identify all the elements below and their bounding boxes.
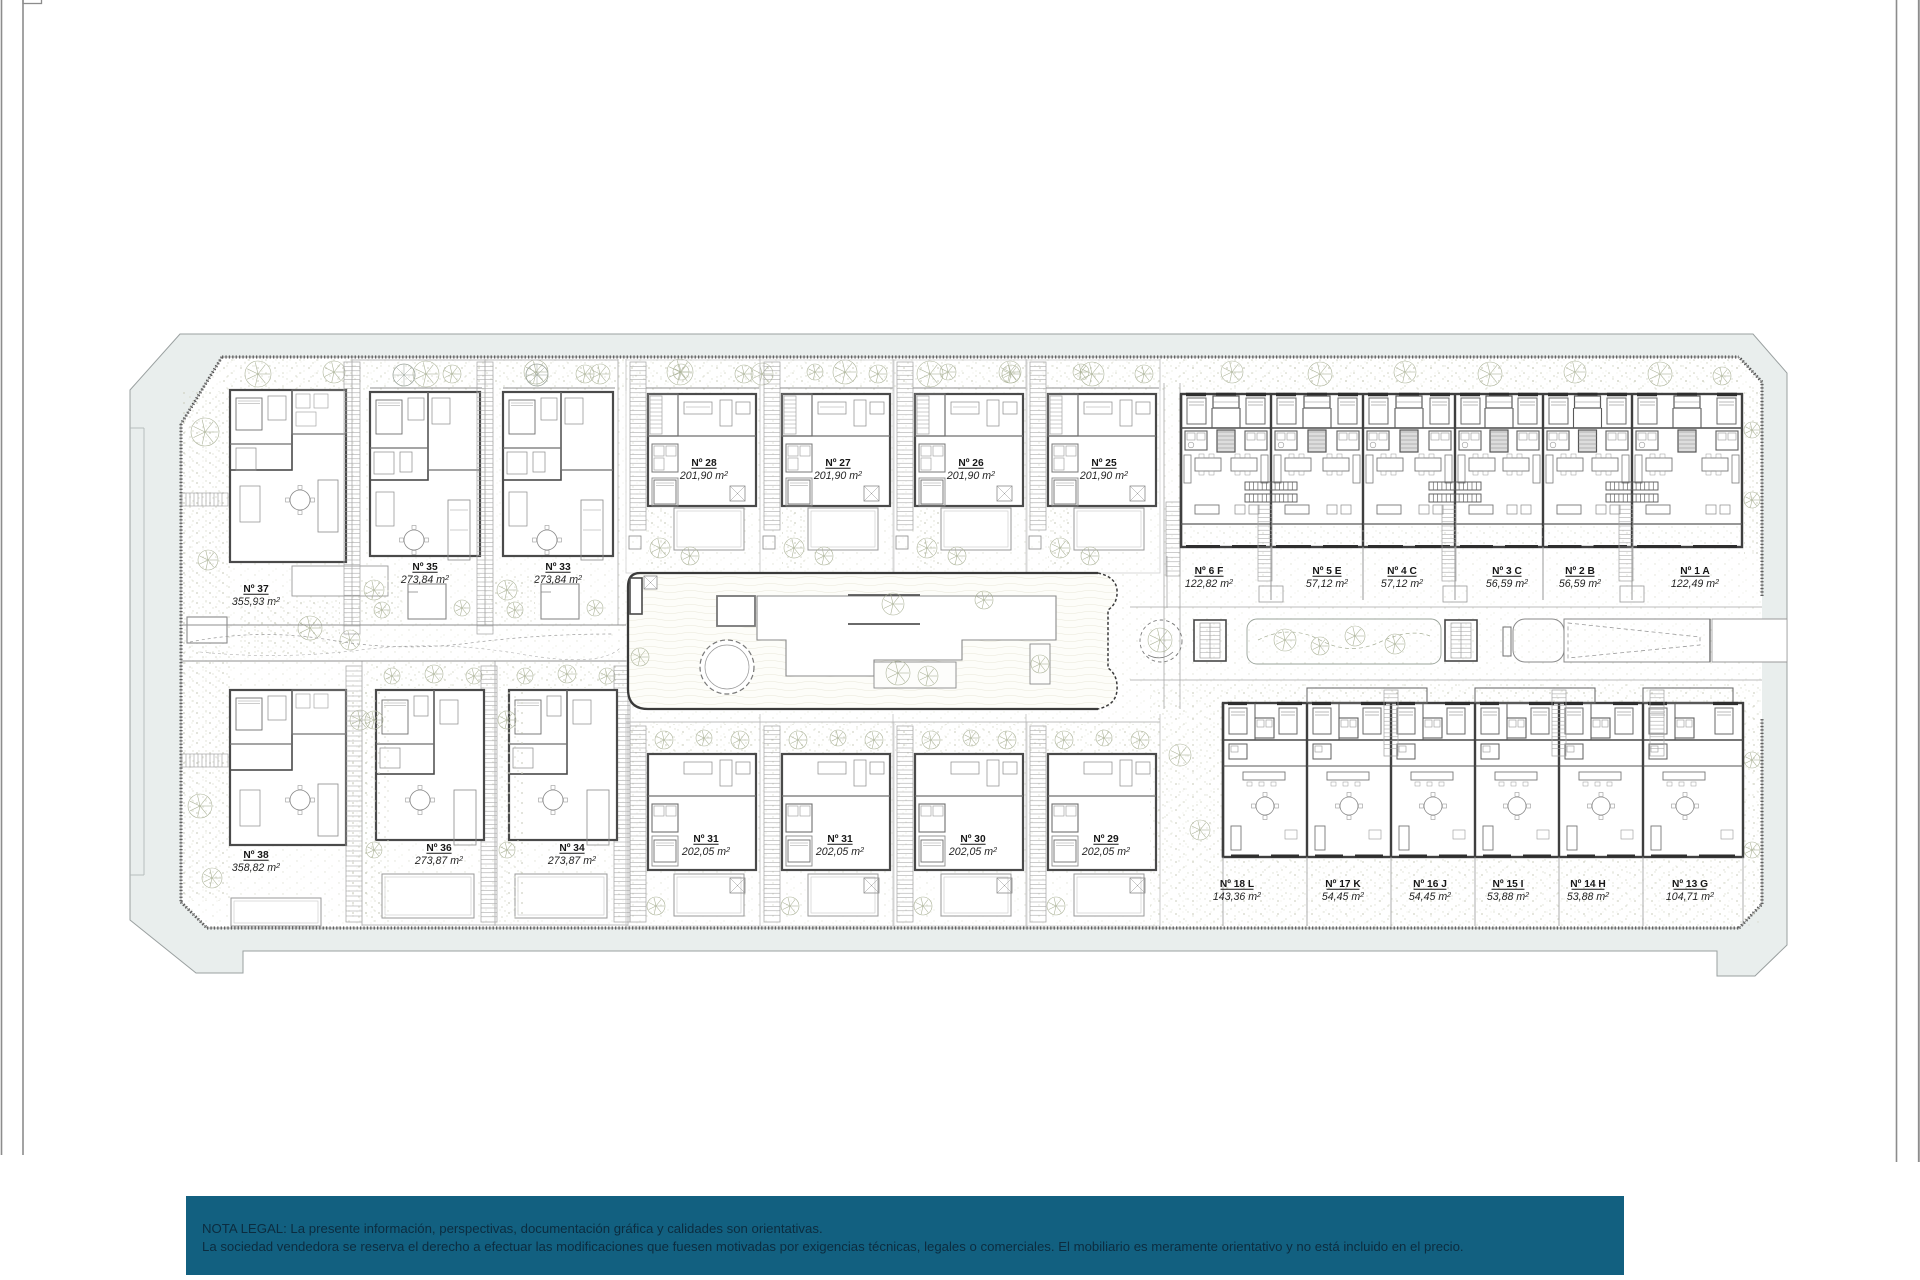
svg-text:273,84 m2: 273,84 m2 <box>533 573 582 586</box>
svg-text:273,87 m2: 273,87 m2 <box>547 854 596 867</box>
svg-text:201,90 m2: 201,90 m2 <box>946 469 995 482</box>
svg-text:201,90 m2: 201,90 m2 <box>813 469 862 482</box>
svg-text:57,12 m2: 57,12 m2 <box>1306 577 1348 590</box>
svg-text:122,49 m2: 122,49 m2 <box>1671 577 1719 590</box>
svg-text:Nº 4 C: Nº 4 C <box>1387 566 1417 577</box>
svg-text:57,12 m2: 57,12 m2 <box>1381 577 1423 590</box>
svg-text:273,87 m2: 273,87 m2 <box>414 854 463 867</box>
svg-text:201,90 m2: 201,90 m2 <box>1079 469 1128 482</box>
svg-text:Nº 33: Nº 33 <box>545 562 571 573</box>
svg-text:Nº 1 A: Nº 1 A <box>1680 566 1710 577</box>
svg-text:201,90 m2: 201,90 m2 <box>679 469 728 482</box>
svg-text:Nº 28: Nº 28 <box>691 458 717 469</box>
svg-text:Nº 15 I: Nº 15 I <box>1493 879 1524 890</box>
svg-text:Nº 31: Nº 31 <box>693 834 719 845</box>
svg-text:143,36 m2: 143,36 m2 <box>1213 890 1261 903</box>
svg-text:Nº 14 H: Nº 14 H <box>1570 879 1605 890</box>
svg-text:Nº 26: Nº 26 <box>958 458 984 469</box>
svg-text:54,45 m2: 54,45 m2 <box>1409 890 1451 903</box>
svg-text:53,88 m2: 53,88 m2 <box>1487 890 1529 903</box>
svg-text:Nº 18 L: Nº 18 L <box>1220 879 1254 890</box>
svg-text:54,45 m2: 54,45 m2 <box>1322 890 1364 903</box>
svg-text:Nº 5 E: Nº 5 E <box>1312 566 1341 577</box>
svg-text:La sociedad vendedora se reser: La sociedad vendedora se reserva el dere… <box>202 1239 1464 1254</box>
svg-text:Nº 38: Nº 38 <box>243 850 269 861</box>
svg-text:Nº 13 G: Nº 13 G <box>1672 879 1708 890</box>
svg-text:Nº 35: Nº 35 <box>412 562 438 573</box>
svg-text:Nº 27: Nº 27 <box>825 458 851 469</box>
svg-text:Nº 34: Nº 34 <box>559 843 585 854</box>
svg-text:Nº 29: Nº 29 <box>1093 834 1119 845</box>
svg-text:Nº 3 C: Nº 3 C <box>1492 566 1522 577</box>
svg-text:122,82 m2: 122,82 m2 <box>1185 577 1233 590</box>
svg-text:Nº 2 B: Nº 2 B <box>1565 566 1595 577</box>
svg-text:Nº 17 K: Nº 17 K <box>1325 879 1361 890</box>
svg-text:Nº 37: Nº 37 <box>243 584 269 595</box>
svg-text:202,05 m2: 202,05 m2 <box>948 845 997 858</box>
svg-text:273,84 m2: 273,84 m2 <box>400 573 449 586</box>
svg-text:358,82 m2: 358,82 m2 <box>232 861 280 874</box>
svg-text:Nº 31: Nº 31 <box>827 834 853 845</box>
svg-text:Nº 30: Nº 30 <box>960 834 986 845</box>
svg-text:NOTA LEGAL: La presente inform: NOTA LEGAL: La presente información, per… <box>202 1221 823 1236</box>
svg-text:Nº 6 F: Nº 6 F <box>1195 566 1224 577</box>
svg-text:Nº 16 J: Nº 16 J <box>1413 879 1447 890</box>
svg-text:56,59 m2: 56,59 m2 <box>1559 577 1601 590</box>
svg-text:56,59 m2: 56,59 m2 <box>1486 577 1528 590</box>
svg-text:104,71 m2: 104,71 m2 <box>1666 890 1714 903</box>
svg-text:Nº 25: Nº 25 <box>1091 458 1117 469</box>
svg-text:53,88 m2: 53,88 m2 <box>1567 890 1609 903</box>
svg-text:Nº 36: Nº 36 <box>426 843 452 854</box>
svg-text:202,05 m2: 202,05 m2 <box>681 845 730 858</box>
svg-text:202,05 m2: 202,05 m2 <box>815 845 864 858</box>
svg-text:202,05 m2: 202,05 m2 <box>1081 845 1130 858</box>
